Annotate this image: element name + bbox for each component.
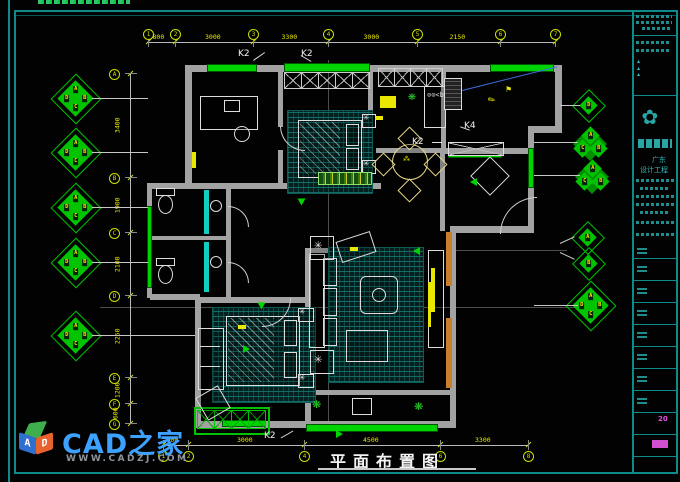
kitchen-cabinet-cell — [394, 68, 411, 87]
elevation-marker-letter: A — [589, 165, 594, 172]
titleblock-row-label — [637, 374, 647, 382]
titleblock-text-row — [636, 15, 672, 18]
top-axis-bubble: 2 — [170, 29, 181, 40]
titleblock-year: 20 — [658, 416, 668, 424]
wardrobe-shelf — [200, 346, 220, 347]
vanity-counter — [204, 190, 209, 234]
pen-symbol: ✎ — [485, 93, 497, 106]
label-leader — [432, 142, 442, 143]
titleblock-row-label — [637, 308, 647, 316]
elevation-marker-letter: C — [72, 213, 77, 220]
balcony-table — [352, 398, 372, 415]
window — [306, 424, 438, 432]
elevation-marker-letter: D — [63, 332, 68, 339]
elevation-marker-letter: B — [595, 145, 600, 152]
wardrobe-cell — [284, 72, 302, 89]
marker-leader-line — [534, 305, 578, 306]
elevation-marker-letter: B — [81, 259, 86, 266]
fan-lamp-icon: ✳ — [314, 352, 322, 366]
label-leader — [253, 52, 265, 61]
elevation-marker-letter: D — [585, 102, 590, 109]
top-axis-bubble: 4 — [323, 29, 334, 40]
watermark-logo: A D CAD之家 WWW.CADZJ.COM — [16, 420, 236, 472]
yellow-accent — [192, 152, 196, 168]
cube-right-face: D — [36, 432, 53, 455]
feature-panel — [446, 232, 452, 286]
wall-segment — [555, 65, 562, 133]
company-logotype-block — [638, 139, 672, 148]
marker-leader-line — [534, 175, 580, 176]
sink — [210, 256, 222, 268]
lamp-icon: ✳ — [299, 307, 305, 317]
elevation-marker-letter: A — [72, 323, 77, 330]
bed-pillow — [284, 352, 297, 378]
door-swing-arc — [280, 126, 305, 151]
titleblock-row-rule — [634, 346, 676, 347]
direction-arrow — [413, 247, 420, 255]
titleblock-row-rule — [634, 390, 676, 391]
top-axis-bubble: 7 — [550, 29, 561, 40]
window — [147, 206, 152, 288]
bed-pillow — [284, 320, 297, 346]
wardrobe-cell — [318, 72, 336, 89]
company-region-text: 广东 — [652, 157, 666, 165]
wall-segment — [150, 294, 200, 300]
titleblock-text-row — [636, 195, 674, 198]
elevation-marker-letter: B — [585, 260, 590, 267]
left-dim-ext — [125, 403, 137, 404]
elevation-marker-letter: A — [584, 234, 589, 241]
plant-icon: ❋ — [312, 396, 321, 411]
window-label-k2-2: K2 — [301, 50, 313, 59]
titleblock-row-rule — [634, 412, 676, 413]
counter-item — [380, 96, 396, 108]
dining-chair — [397, 178, 421, 202]
toilet-bowl — [158, 195, 173, 214]
elevation-marker-letter: C — [587, 311, 592, 318]
bottom-dim-text: 3000 — [237, 437, 253, 444]
top-axis-bubble: 3 — [248, 29, 259, 40]
titleblock-stamp — [652, 440, 668, 448]
window-label-k2-4: K2 — [264, 432, 276, 441]
left-dim-text: 2100 — [115, 256, 122, 272]
marker-leader-line — [92, 262, 148, 263]
titleblock-text-row — [636, 49, 670, 52]
living-room-rug — [328, 247, 424, 383]
titleblock-rule — [634, 35, 676, 36]
sofa-cushion — [323, 258, 337, 286]
elevation-marker-letter: B — [597, 178, 602, 185]
sofa-cushion — [323, 318, 337, 346]
top-dim-line — [148, 42, 555, 43]
wall-segment — [530, 126, 560, 133]
bottom-dim-ext — [528, 440, 529, 450]
titleblock-text-row — [640, 187, 670, 190]
left-axis-bubble: A — [109, 69, 120, 80]
wardrobe-cell — [352, 72, 370, 89]
titleblock-row-rule — [634, 368, 676, 369]
titleblock-row-rule — [634, 258, 676, 259]
elevation-marker-letter: C — [579, 145, 584, 152]
dresser — [318, 172, 372, 185]
lamp-icon: ✳ — [363, 159, 369, 169]
titleblock-row-label — [637, 246, 647, 254]
bed-blanket — [228, 318, 274, 382]
top-dim-text: 800 — [153, 34, 165, 41]
elevation-marker-letter: A — [72, 86, 77, 93]
titleblock-rule — [634, 95, 676, 96]
elevation-marker-letter: B — [81, 332, 86, 339]
left-axis-bubble: B — [109, 173, 120, 184]
titleblock-row-label — [637, 264, 647, 272]
bottom-axis-bubble: 8 — [523, 451, 534, 462]
left-dim-ext — [125, 177, 137, 178]
elevation-marker-letter: D — [578, 302, 583, 309]
direction-arrow — [243, 345, 250, 353]
wardrobe-cell — [335, 72, 353, 89]
elevation-marker-letter: A — [72, 195, 77, 202]
wall-segment — [185, 65, 192, 188]
elevation-marker-letter: D — [63, 259, 68, 266]
marker-leader-line — [92, 335, 195, 336]
lamp-icon: ✳ — [299, 373, 305, 383]
lamp-icon: ✳ — [363, 113, 369, 123]
desk-chair — [234, 126, 250, 142]
elevation-marker-letter: C — [72, 341, 77, 348]
door-swing-arc — [228, 262, 249, 283]
wardrobe-shelf — [200, 366, 220, 367]
kitchen-cabinet-cell — [410, 68, 427, 87]
left-dim-ext — [125, 295, 137, 296]
titleblock-text-row — [636, 179, 674, 182]
yellow-accent — [350, 247, 358, 251]
top-dim-text: 3000 — [364, 34, 380, 41]
window-label-k4: K4 — [464, 122, 476, 131]
elevation-marker-letter: A — [72, 250, 77, 257]
door-swing-arc — [500, 197, 537, 234]
coffee-table-decor — [372, 288, 386, 302]
yellow-accent — [238, 325, 246, 329]
marker-leader-line — [92, 98, 148, 99]
titleblock-row-label — [637, 286, 647, 294]
kitchen-cabinet-cell — [378, 68, 395, 87]
left-dim-text: 2250 — [115, 328, 122, 344]
wall-segment — [150, 236, 228, 240]
label-leader — [281, 431, 294, 439]
elevation-marker-letter: C — [581, 178, 586, 185]
top-dim-text: 2150 — [450, 34, 466, 41]
elevation-marker-letter: B — [596, 302, 601, 309]
marker-leader-line — [534, 142, 578, 143]
plant-icon: ❋ — [408, 90, 416, 103]
left-dim-line — [130, 73, 131, 423]
bottom-dim-text: 4500 — [363, 437, 379, 444]
watermark-url-text: WWW.CADZJ.COM — [66, 454, 189, 464]
titleblock-text-row — [642, 27, 672, 30]
fixed-window-k2 — [448, 142, 504, 156]
direction-arrow — [298, 199, 306, 206]
plan-canvas: ✳✳❋⊙⊙<br>⊙⊙⁂✎⚑✳✳✳✳❋❋12345678003000330030… — [0, 0, 680, 482]
direction-arrow — [336, 430, 343, 438]
elevation-marker-letter: C — [72, 268, 77, 275]
desk-monitor — [224, 100, 240, 112]
sink — [210, 200, 222, 212]
bed-blanket — [300, 122, 340, 174]
window — [490, 64, 554, 72]
titleblock-marks: ▴▴▴ — [637, 59, 640, 79]
left-dim-ext — [125, 73, 137, 74]
flag-symbol: ⚑ — [506, 86, 511, 95]
left-dim-text: 3400 — [115, 117, 122, 133]
titleblock-row-rule — [634, 302, 676, 303]
planter-cell — [248, 410, 266, 429]
left-dim-text: 600 — [113, 407, 120, 419]
elevation-marker-letter: B — [81, 204, 86, 211]
plant-icon: ❋ — [414, 398, 423, 413]
bottom-dim-ext — [304, 440, 305, 450]
titleblock-text-row — [636, 21, 672, 24]
table-decor: ⁂ — [403, 156, 410, 163]
titleblock-row-rule — [634, 324, 676, 325]
wall-segment — [278, 150, 283, 189]
top-axis-bubble: 5 — [412, 29, 423, 40]
titleblock-text-row — [640, 211, 670, 214]
decor-diamond — [470, 156, 510, 196]
titleblock-row-rule — [634, 434, 676, 435]
left-dim-text: 1900 — [115, 197, 122, 213]
elevation-marker-letter: B — [81, 95, 86, 102]
titleblock-row-label — [637, 352, 647, 360]
elevation-marker-letter: C — [72, 104, 77, 111]
leader-line — [455, 250, 567, 251]
marker-leader-line — [92, 207, 148, 208]
company-logo-flower-icon: ✿ — [642, 103, 658, 129]
drawing-title-underline — [318, 468, 476, 470]
company-name-text: 设计工程 — [640, 167, 668, 175]
window — [284, 63, 370, 72]
elevation-marker-letter: A — [72, 140, 77, 147]
bottom-dim-text: 3300 — [475, 437, 491, 444]
marker-leader-fork — [560, 252, 575, 260]
elevation-marker-letter: A — [587, 293, 592, 300]
sofa-cushion — [323, 288, 337, 316]
titleblock-row-rule — [634, 280, 676, 281]
marker-leader-line — [92, 152, 148, 153]
left-axis-bubble: D — [109, 291, 120, 302]
toilet-bowl — [158, 265, 173, 284]
wall-panel-strip — [428, 282, 431, 327]
top-axis-bubble: 6 — [495, 29, 506, 40]
cadzj-cube-icon: A D — [16, 422, 56, 466]
titleblock-text-row — [636, 221, 674, 224]
titleblock-text-row — [636, 41, 670, 44]
titleblock-text-row — [636, 233, 674, 236]
window — [528, 148, 534, 188]
yellow-accent — [375, 116, 383, 120]
bottom-axis-bubble: 4 — [299, 451, 310, 462]
feature-panel — [446, 318, 452, 388]
titleblock-row-label — [637, 330, 647, 338]
armchair — [346, 330, 388, 362]
elevation-marker-letter: D — [63, 149, 68, 156]
wall-segment — [305, 390, 455, 395]
marker-leader-line — [560, 105, 580, 106]
window-label-k2-3: K2 — [412, 138, 424, 147]
cad-floorplan-screenshot: ✳✳❋⊙⊙<br>⊙⊙⁂✎⚑✳✳✳✳❋❋12345678003000330030… — [0, 0, 680, 482]
tv-set — [431, 268, 435, 312]
left-dim-ext — [125, 232, 137, 233]
titleblock-text-row — [636, 203, 674, 206]
left-axis-bubble: C — [109, 228, 120, 239]
elevation-marker-letter: D — [63, 95, 68, 102]
elevation-marker-letter: A — [587, 132, 592, 139]
elevation-marker-letter: C — [72, 158, 77, 165]
titleblock-row-label — [637, 396, 647, 404]
titleblock-row-rule — [634, 456, 676, 457]
fan-lamp-icon: ✳ — [314, 238, 322, 252]
kitchen-cabinet-cell — [426, 68, 443, 87]
balcony-cabinet — [444, 78, 462, 110]
vanity-counter — [204, 242, 209, 292]
window-label-k2-1: K2 — [238, 50, 250, 59]
bed-pillow — [346, 148, 359, 170]
wardrobe-cell — [301, 72, 319, 89]
wall-segment — [195, 297, 309, 303]
left-dim-ext — [125, 377, 137, 378]
door-swing-arc — [228, 206, 249, 227]
direction-arrow — [258, 303, 266, 310]
elevation-marker-letter: D — [63, 204, 68, 211]
window — [207, 64, 257, 72]
wardrobe — [198, 328, 224, 390]
wall-segment — [278, 65, 283, 127]
elevation-marker-letter: B — [81, 149, 86, 156]
bed-pillow — [346, 124, 359, 146]
top-dim-text: 3300 — [282, 34, 298, 41]
top-dim-text: 3000 — [205, 34, 221, 41]
direction-arrow — [470, 178, 477, 186]
left-dim-text: 1200 — [115, 382, 122, 398]
